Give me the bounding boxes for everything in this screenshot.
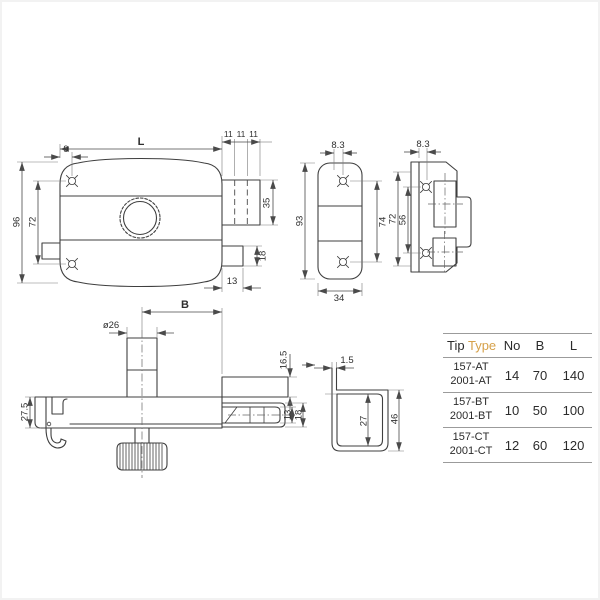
type-line1: 157-AT (443, 361, 499, 375)
dim-label-16.5: 16.5 (279, 351, 290, 370)
screw-hole (337, 256, 349, 268)
dim-label-46: 46 (390, 414, 401, 425)
latch-bolt (222, 246, 243, 266)
l-value: 140 (555, 368, 592, 383)
no-value: 12 (499, 438, 525, 453)
side-tab (42, 243, 60, 259)
dim-label-56: 56 (398, 215, 409, 226)
l-value: 120 (555, 438, 592, 453)
strike-plate-view: 8.3 72 56 (388, 139, 471, 272)
type-line2: 2001-AT (443, 375, 499, 389)
cylinder-ring (120, 198, 160, 238)
col-header-type: Tip Type (443, 338, 499, 353)
dim-label-13: 13 (283, 410, 294, 421)
cover-plate (222, 377, 288, 397)
screw-hole (66, 258, 78, 270)
col-header-b: B (525, 338, 555, 353)
dim-label-11a: 11 (224, 129, 233, 139)
col-header-no: No (499, 338, 525, 353)
dim-label-8.3: 8.3 (416, 139, 429, 150)
strike-box-view: 1.5 27 46 (314, 355, 404, 451)
dim-label-18: 18 (294, 410, 305, 421)
no-value: 14 (499, 368, 525, 383)
table-row: 157-AT 2001-AT 14 70 140 (443, 357, 592, 392)
dim-label-L: L (138, 136, 145, 148)
back-plate-view: 8.3 93 74 34 (295, 140, 389, 304)
dim-label-96: 96 (12, 217, 23, 228)
dim-label-8.3: 8.3 (331, 140, 344, 151)
table-header-row: Tip Type No B L (443, 333, 592, 357)
dim-label-1.5: 1.5 (340, 355, 353, 366)
screw-hole (420, 181, 432, 193)
type-line1: 157-BT (443, 396, 499, 410)
dim-label-27: 27 (359, 416, 370, 427)
dim-label-27.5: 27.5 (20, 403, 31, 422)
dim-label-11c: 11 (249, 129, 258, 139)
no-value: 10 (499, 403, 525, 418)
b-value: 60 (525, 438, 555, 453)
top-view: 27.5 ø26 B 16.5 13 18 (20, 299, 315, 478)
dim-label-35: 35 (262, 198, 273, 209)
table-row: 157-BT 2001-BT 10 50 100 (443, 392, 592, 427)
hook (46, 428, 66, 448)
b-value: 50 (525, 403, 555, 418)
dim-label-13: 13 (227, 276, 238, 287)
dim-label-11b: 11 (237, 129, 246, 139)
dim-label-34: 34 (334, 293, 345, 304)
l-value: 100 (555, 403, 592, 418)
front-view: L 9 11 11 11 96 72 35 18 13 (12, 129, 278, 292)
dim-label-d26: ø26 (103, 320, 119, 331)
type-cell: 157-CT 2001-CT (443, 428, 499, 462)
screw-hole (420, 247, 432, 259)
dim-label-B: B (181, 299, 189, 311)
hook-detail (46, 397, 67, 428)
type-line1: 157-CT (443, 431, 499, 445)
type-cell: 157-AT 2001-AT (443, 358, 499, 392)
header-tip: Tip (447, 338, 465, 353)
dim-label-72: 72 (28, 217, 39, 228)
screw-hole (66, 175, 78, 187)
spec-table: Tip Type No B L 157-AT 2001-AT 14 70 140… (443, 333, 592, 463)
dim-label-93: 93 (295, 216, 306, 227)
dim-label-18: 18 (258, 251, 269, 262)
b-value: 70 (525, 368, 555, 383)
screw-hole (337, 175, 349, 187)
type-cell: 157-BT 2001-BT (443, 393, 499, 427)
dim-label-9: 9 (63, 144, 68, 155)
header-type: Type (468, 338, 496, 353)
type-line2: 2001-CT (443, 445, 499, 459)
lock-technical-drawing-page: L 9 11 11 11 96 72 35 18 13 (0, 0, 600, 600)
cylinder-housing (222, 180, 260, 225)
type-line2: 2001-BT (443, 410, 499, 424)
technical-drawing: L 9 11 11 11 96 72 35 18 13 (0, 0, 600, 600)
col-header-l: L (555, 338, 592, 353)
table-row: 157-CT 2001-CT 12 60 120 (443, 427, 592, 463)
